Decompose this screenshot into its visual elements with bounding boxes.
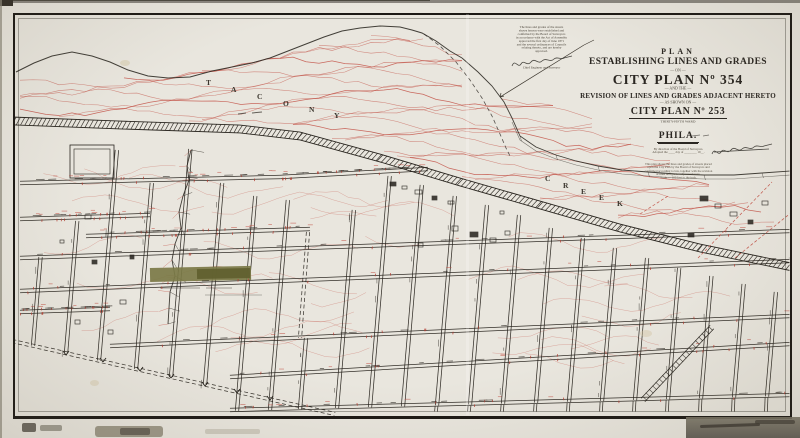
title-fine-print-2: This plan shows the lines and grades of … <box>546 163 800 180</box>
title-fine-print-1: By direction of the Board of Surveyors. … <box>546 148 800 155</box>
title-phila: PHILA. <box>546 126 800 143</box>
valley-letter: N <box>309 105 314 114</box>
valley-letter: C <box>257 92 262 101</box>
valley-letter: A <box>231 85 236 94</box>
title-city-plan-354: CITY PLAN Nº 354 <box>546 73 800 86</box>
fine-line: Adopted the ____ day of ________ 19__. <box>546 152 800 155</box>
title-ward: THIRTY-FIFTH WARD <box>605 121 750 123</box>
valley-letter: T <box>206 78 211 87</box>
title-sep-and-the: — AND THE — <box>599 87 757 90</box>
title-plan: PLAN <box>546 48 800 56</box>
title-city-plan-253-text: CITY PLAN Nº 253 <box>629 106 727 119</box>
valley-letter: O <box>283 99 289 108</box>
valley-letter: K <box>617 199 623 208</box>
title-city-plan-253: CITY PLAN Nº 253 <box>546 106 800 119</box>
title-sep-on: — ON — <box>599 69 757 72</box>
title-revision: REVISION OF LINES AND GRADES ADJACENT HE… <box>546 92 800 100</box>
title-establishing: ESTABLISHING LINES AND GRADES <box>546 58 800 68</box>
title-phila-text: PHILA. <box>657 131 699 143</box>
scanned-city-plan: TACONYCREEK The lines and grades of the … <box>0 0 800 438</box>
title-sep-as-shown: — AS SHOWN ON — <box>599 101 757 104</box>
fine-line: Scale — 100 feet to the inch. <box>546 176 800 179</box>
title-block: PLAN ESTABLISHING LINES AND GRADES — ON … <box>546 48 800 195</box>
valley-letter: Y <box>334 111 339 120</box>
